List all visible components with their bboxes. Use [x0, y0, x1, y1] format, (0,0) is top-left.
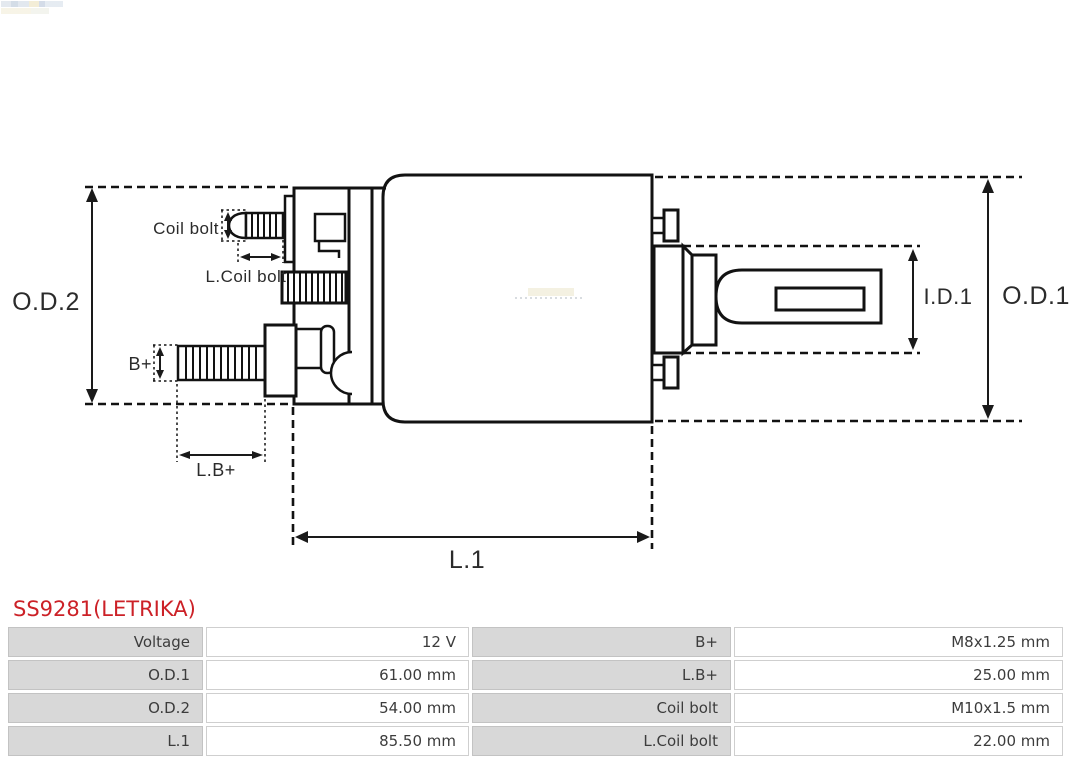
- page: O.D.2 Coil bolt L.Coil bolt B+ L.B+ L.1 …: [0, 0, 1080, 767]
- dim-label-od1: O.D.1: [1002, 282, 1070, 310]
- spec-value: 22.00 mm: [734, 726, 1063, 756]
- dim-label-b-plus: B+: [128, 354, 152, 374]
- coil-bolt-nut: [282, 272, 346, 303]
- spec-value: 61.00 mm: [206, 660, 469, 690]
- spec-label: Coil bolt: [472, 693, 731, 723]
- spec-value: M10x1.5 mm: [734, 693, 1063, 723]
- logo-artifact: [1, 1, 63, 7]
- solenoid-technical-drawing: O.D.2 Coil bolt L.Coil bolt B+ L.B+ L.1 …: [0, 0, 1080, 592]
- solenoid-body: [383, 175, 652, 422]
- product-title: SS9281(LETRIKA): [13, 598, 1080, 620]
- dim-label-l-b-plus: L.B+: [196, 460, 236, 480]
- spec-label: O.D.2: [8, 693, 203, 723]
- spec-table: Voltage 12 V B+ M8x1.25 mm O.D.1 61.00 m…: [8, 627, 1063, 756]
- dim-label-coil-bolt: Coil bolt: [153, 219, 219, 238]
- spec-label: Voltage: [8, 627, 203, 657]
- spec-label: L.Coil bolt: [472, 726, 731, 756]
- spec-value: M8x1.25 mm: [734, 627, 1063, 657]
- spec-label: L.1: [8, 726, 203, 756]
- spec-value: 25.00 mm: [734, 660, 1063, 690]
- dim-label-l-coil-bolt: L.Coil bolt: [205, 267, 286, 286]
- coil-bolt-stud: [229, 213, 283, 238]
- dim-label-l1: L.1: [449, 546, 485, 574]
- plunger-assembly: [654, 246, 881, 353]
- spec-value: 54.00 mm: [206, 693, 469, 723]
- watermark-smudge: [528, 288, 574, 296]
- dim-label-od2: O.D.2: [12, 288, 80, 316]
- spec-value: 85.50 mm: [206, 726, 469, 756]
- dim-label-id1: I.D.1: [924, 284, 973, 309]
- spec-value: 12 V: [206, 627, 469, 657]
- spec-label: B+: [472, 627, 731, 657]
- logo-artifact-row2: [1, 8, 49, 14]
- b-plus-stud: [178, 325, 296, 396]
- spec-label: L.B+: [472, 660, 731, 690]
- spec-label: O.D.1: [8, 660, 203, 690]
